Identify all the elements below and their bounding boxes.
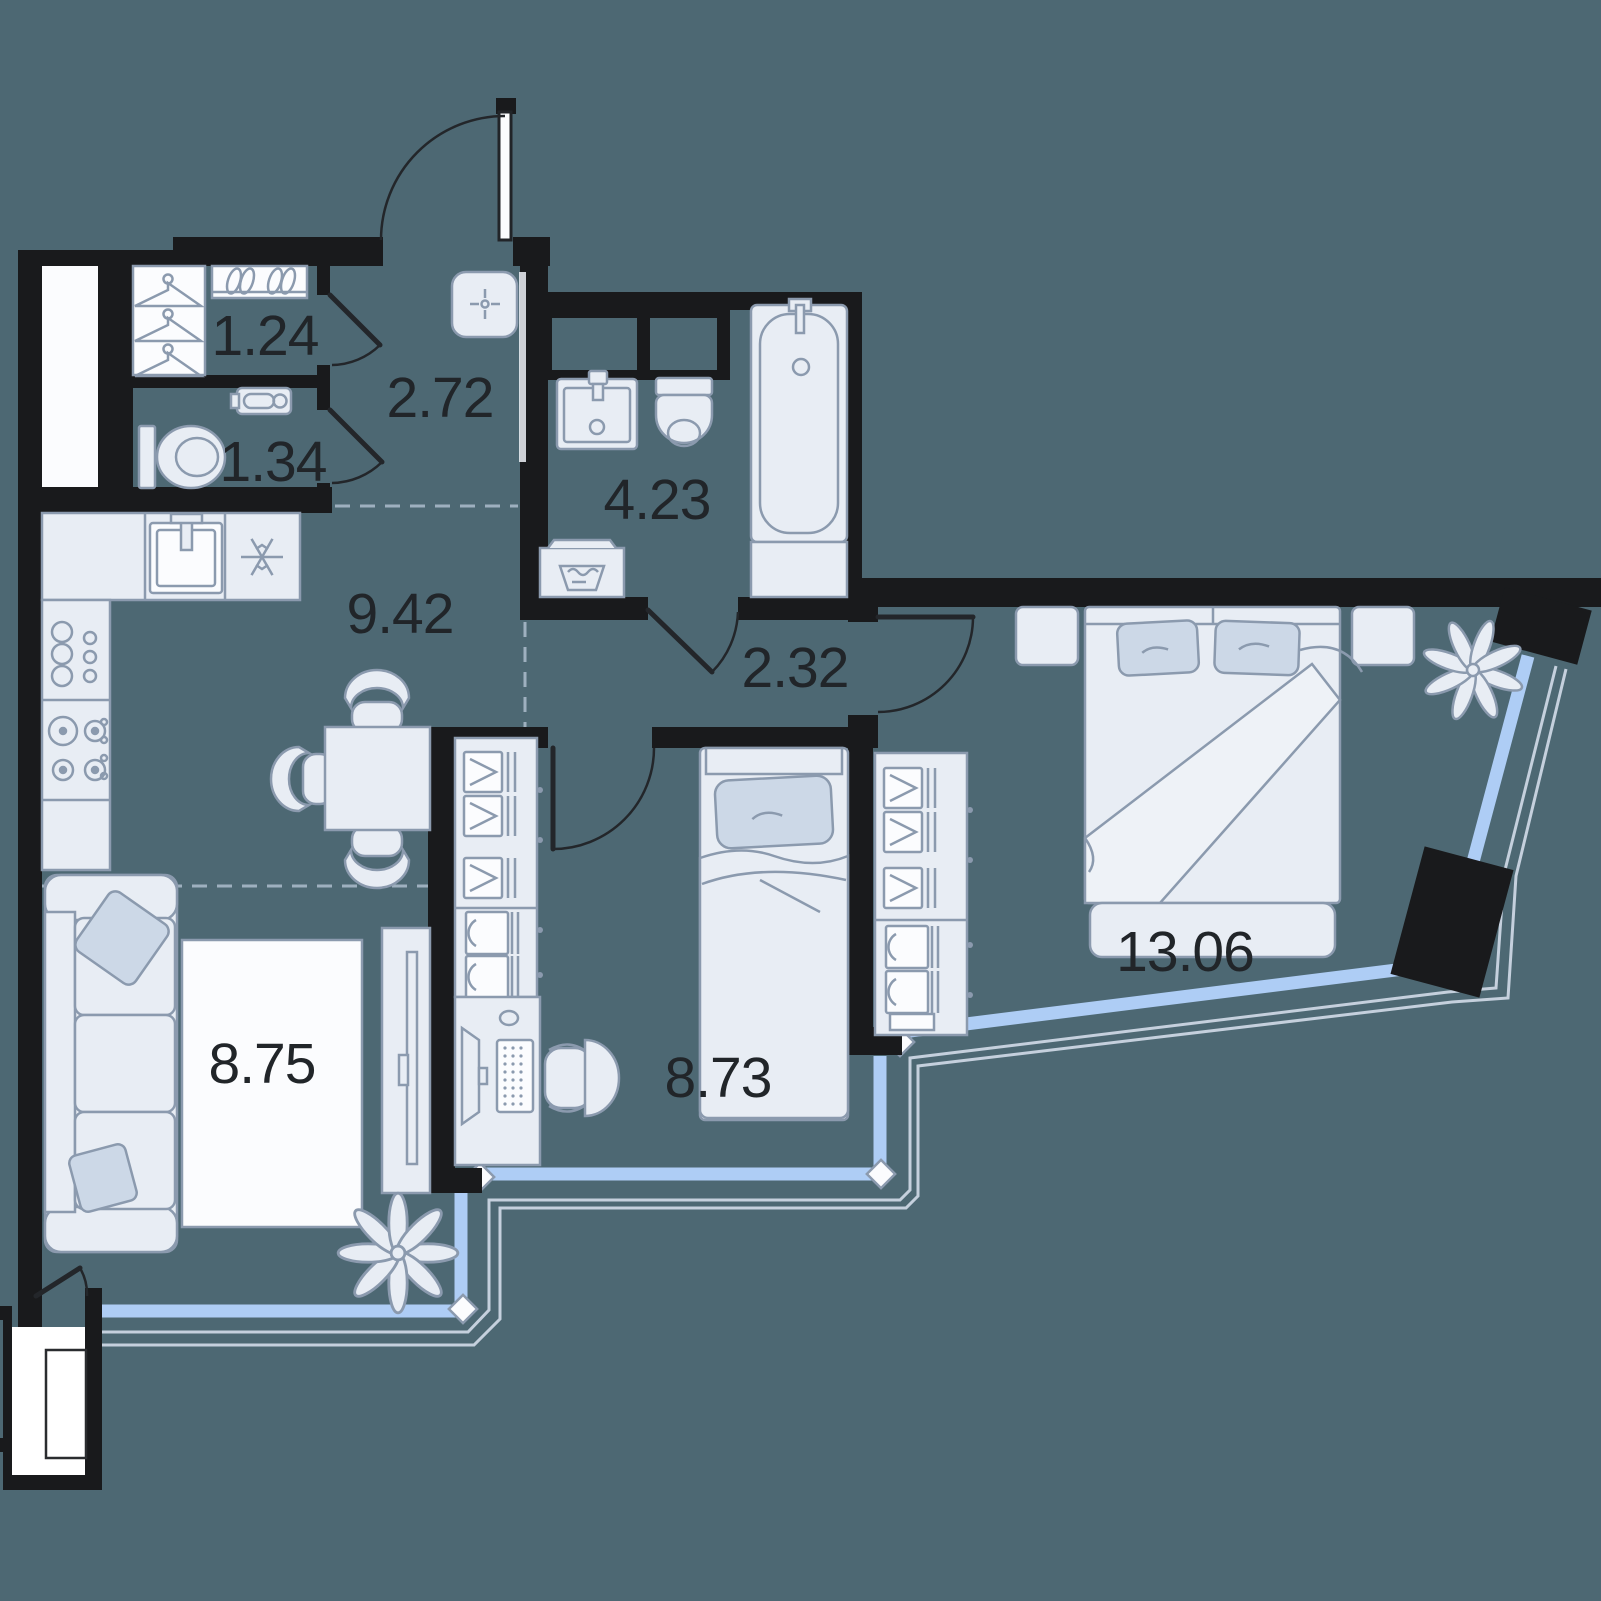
shirt-icon (884, 768, 935, 808)
ceiling-light-icon (452, 272, 517, 337)
room-label-corridor: 2.32 (742, 636, 849, 700)
mouse-icon (500, 1011, 518, 1025)
monitor-icon (462, 1028, 479, 1124)
hygiene-sink-icon (231, 388, 291, 414)
washing-machine-icon (540, 540, 624, 597)
room-label-living: 8.75 (209, 1032, 316, 1096)
shirt-icon (464, 752, 515, 792)
room-label-bedroom: 13.06 (1116, 920, 1254, 984)
office-chair (545, 1040, 619, 1116)
washbasin-icon (557, 371, 637, 449)
room-label-kitchen: 9.42 (347, 582, 454, 646)
nightstand (1352, 607, 1414, 665)
room-label-bathroom: 4.23 (604, 468, 711, 532)
shirt-icon (884, 868, 935, 908)
floor-plan: 1.24 2.72 1.34 4.23 9.42 2.32 8.75 8.73 … (0, 0, 1601, 1601)
bedroom-wardrobe (875, 753, 973, 1035)
bathtub-icon (751, 299, 847, 597)
shirt-icon (884, 812, 935, 852)
tv-console (382, 928, 430, 1193)
shoe-shelf (212, 266, 307, 298)
keyboard-icon (497, 1040, 533, 1112)
plant-icon (338, 1193, 458, 1313)
kitchen-sink-icon (150, 514, 222, 593)
floor-plan-canvas: 1.24 2.72 1.34 4.23 9.42 2.32 8.75 8.73 … (0, 0, 1601, 1601)
hallway-fittings (452, 272, 517, 337)
shirt-icon (464, 858, 515, 898)
toilet-icon (139, 426, 225, 488)
nightstand (1016, 607, 1078, 665)
kids-wardrobe (455, 738, 543, 998)
toilet-icon (656, 378, 712, 446)
sofa (45, 875, 177, 1252)
balcony-unit (46, 1350, 86, 1458)
room-label-hallway: 2.72 (387, 366, 494, 430)
wall-edge-highlight (519, 272, 526, 462)
room-label-kids: 8.73 (665, 1046, 772, 1110)
shirt-icon (464, 796, 515, 836)
void-strip (42, 266, 98, 487)
room-label-closet: 1.24 (212, 304, 319, 368)
desk (455, 997, 540, 1165)
double-bed (1085, 607, 1362, 957)
room-label-wc: 1.34 (220, 430, 327, 494)
dining-table (325, 727, 430, 830)
